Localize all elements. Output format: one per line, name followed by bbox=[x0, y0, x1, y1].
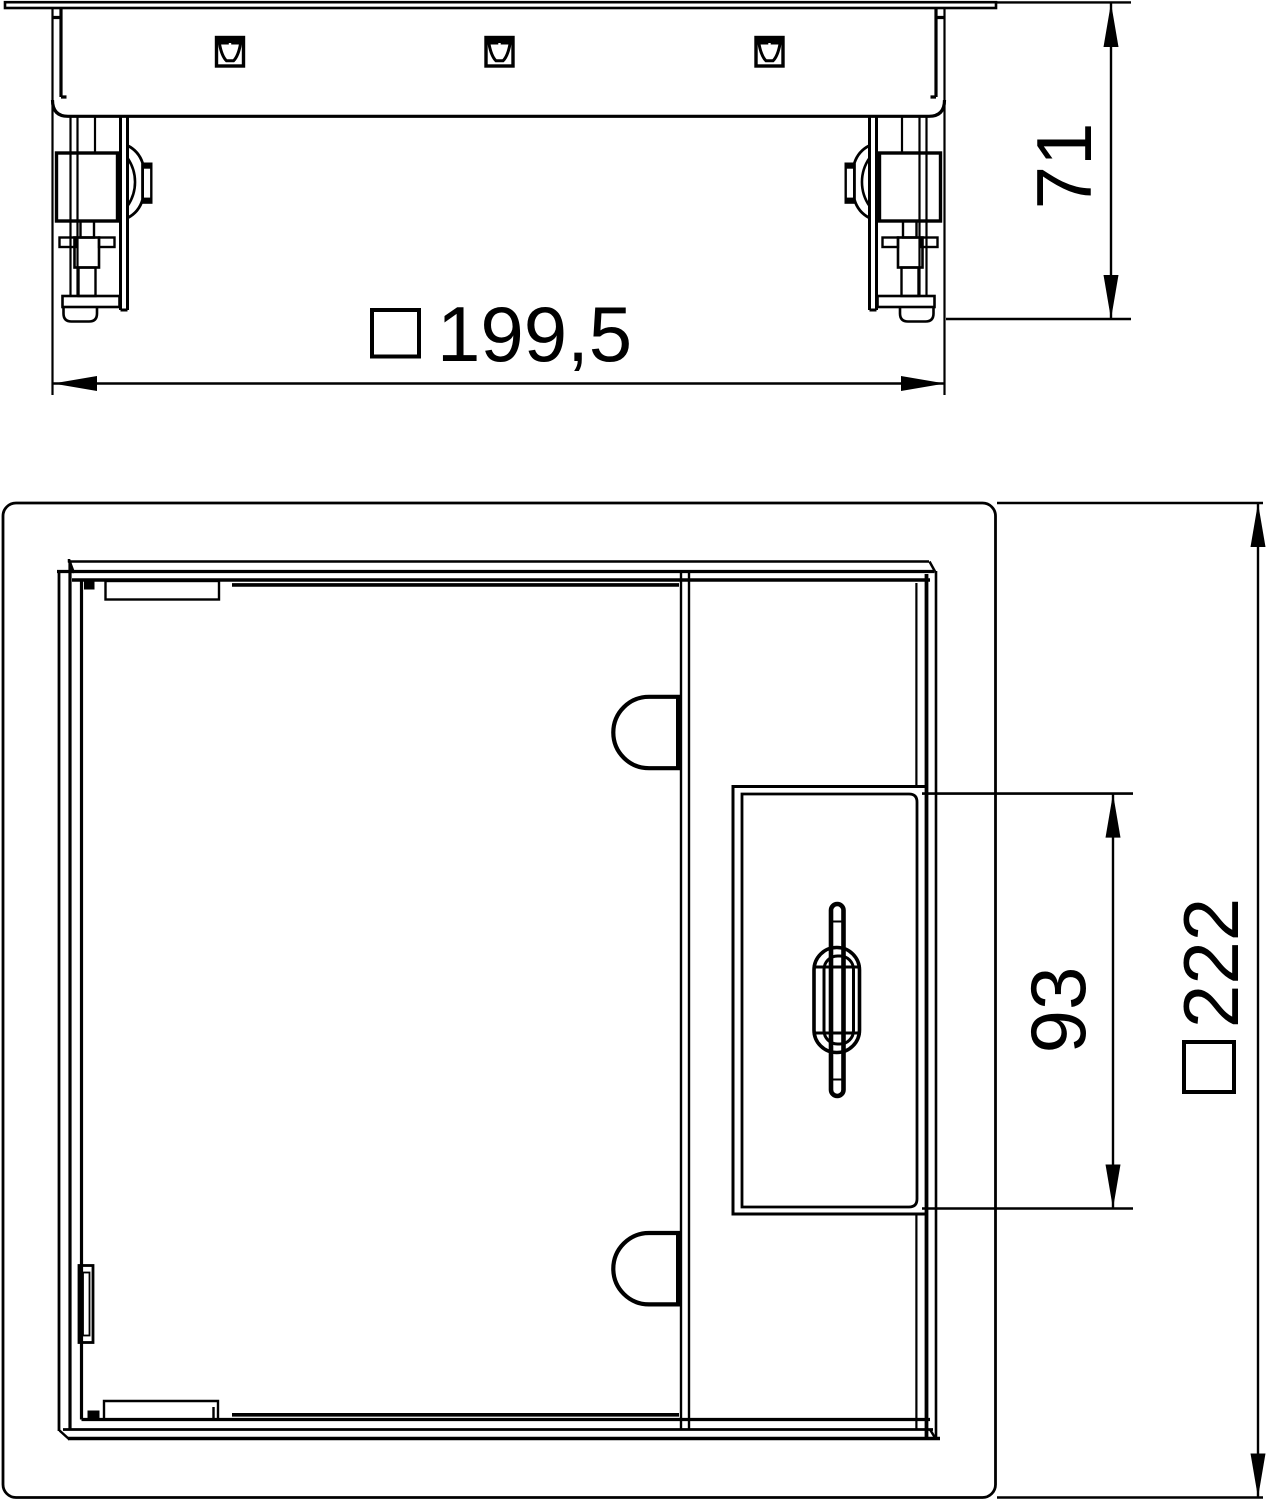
svg-text:93: 93 bbox=[1014, 967, 1102, 1054]
svg-text:71: 71 bbox=[1020, 123, 1108, 210]
svg-text:222: 222 bbox=[1167, 898, 1255, 1028]
svg-text:199,5: 199,5 bbox=[437, 290, 632, 378]
